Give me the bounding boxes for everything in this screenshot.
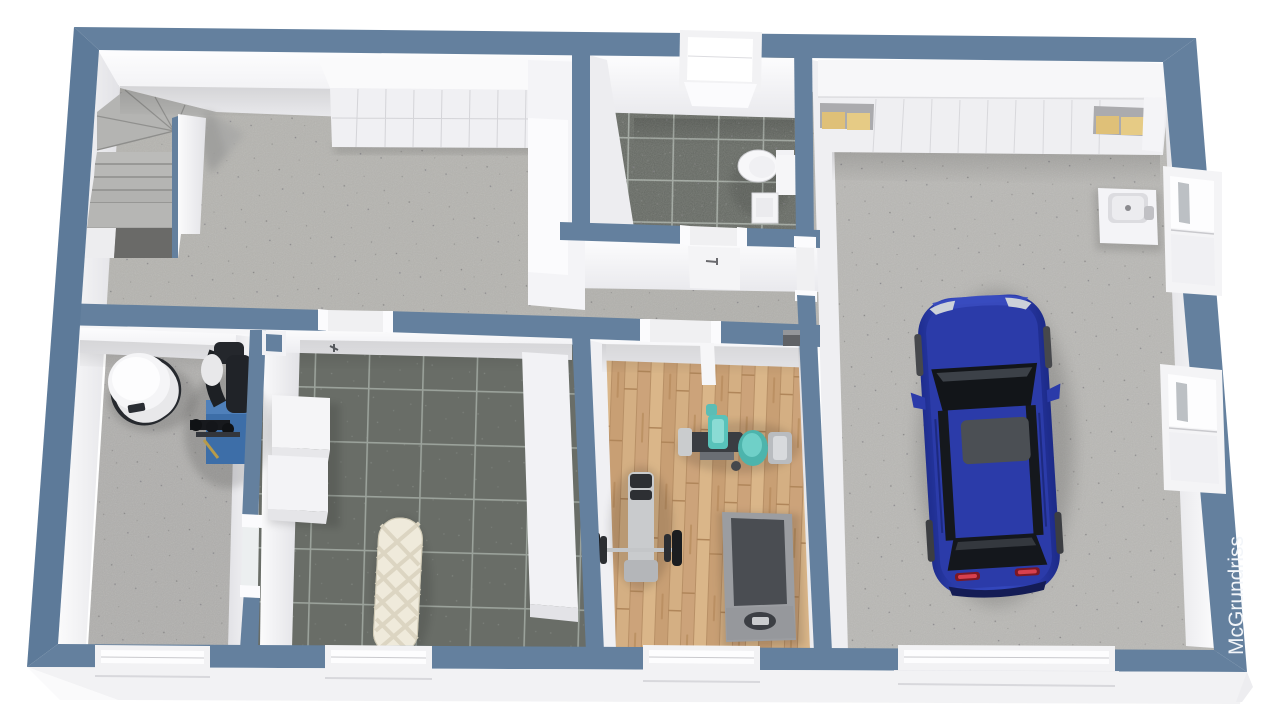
svg-text:McGrundriss: McGrundriss <box>1225 536 1248 655</box>
